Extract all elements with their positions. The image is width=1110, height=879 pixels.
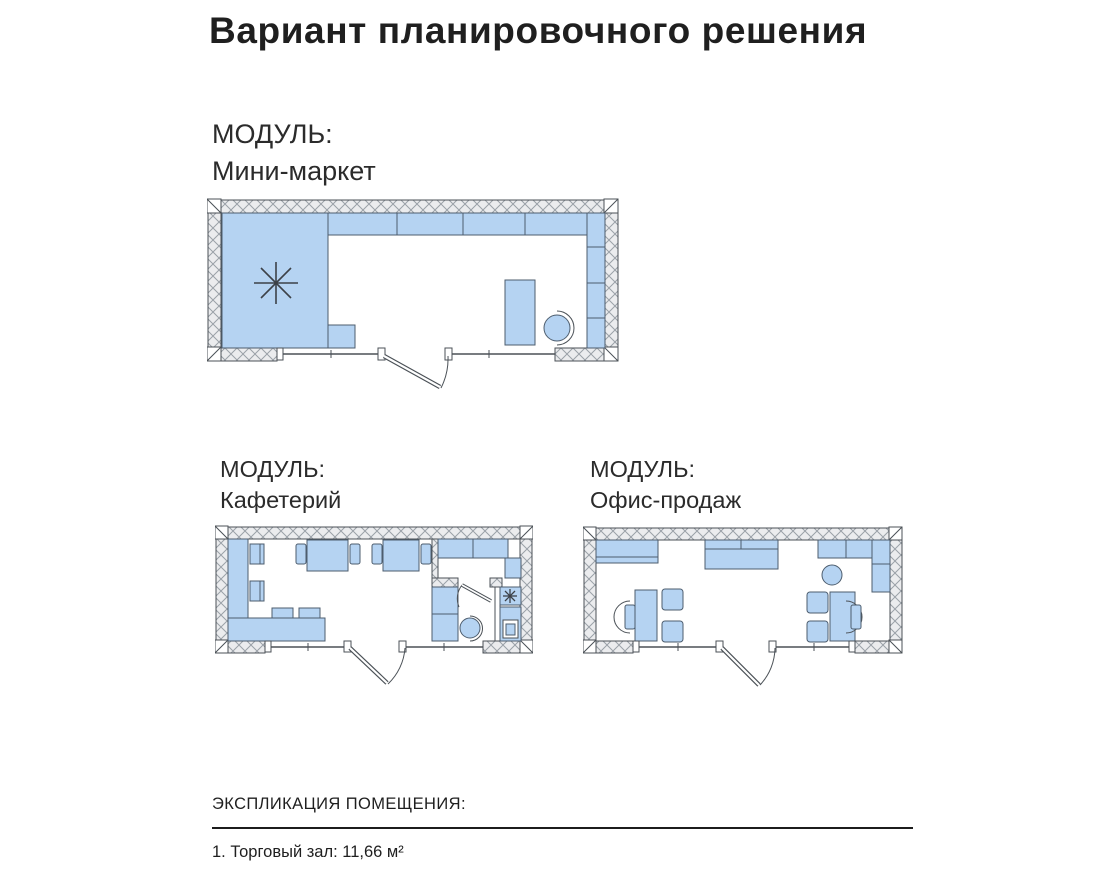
sofa [705,540,778,569]
desk [635,590,657,641]
storefront-glazing [265,641,483,652]
kitchen-stool [460,616,483,641]
kitchen-cabinets [432,587,458,641]
floor-plan-minimarket [207,198,620,396]
visitor-chair [662,589,683,610]
door-swing-arc [760,648,775,685]
cashier-stool [544,311,574,345]
module-name-minimarket: Мини-маркет [212,153,376,190]
visitor-chair [807,592,828,613]
explication-divider [212,827,913,829]
visitor-chair [807,621,828,642]
explication-item: 1. Торговый зал: 11,66 м² [212,843,404,862]
kitchen-counter [438,539,521,578]
module-label-prefix: МОДУЛЬ: [590,454,741,485]
wall-cabinet [596,540,658,563]
module-label-salesoffice: МОДУЛЬ: Офис-продаж [590,454,741,516]
workstation-2 [807,592,862,642]
floor-plan-cafeteria [215,525,533,700]
page-title: Вариант планировочного решения [209,10,867,52]
cashier-counter [505,280,535,345]
wc-room [500,587,521,641]
coffee-table [822,565,842,585]
interior-door [457,585,491,607]
dining-table-1 [296,540,360,571]
explication-heading: ЭКСПЛИКАЦИЯ ПОМЕЩЕНИЯ: [212,795,466,814]
module-label-prefix: МОДУЛЬ: [220,454,341,485]
entrance-door [344,641,406,684]
door-swing-arc [388,648,405,684]
module-label-minimarket: МОДУЛЬ: Мини-маркет [212,116,376,190]
visitor-chair [662,621,683,642]
storefront-glazing [633,641,855,652]
storefront-glazing [277,348,555,360]
module-name-salesoffice: Офис-продаж [590,485,741,516]
floor-plan-salesoffice [583,525,903,700]
workstation-1 [614,589,683,642]
entrance-door [716,641,776,685]
module-label-prefix: МОДУЛЬ: [212,116,376,153]
shelving-top-wall [328,213,587,235]
module-name-cafeteria: Кафетерий [220,485,341,516]
page: Вариант планировочного решения МОДУЛЬ: М… [0,0,1110,879]
shelving-right-wall [587,213,605,348]
entrance-door [378,348,452,388]
dining-table-2 [372,540,431,571]
module-label-cafeteria: МОДУЛЬ: Кафетерий [220,454,341,516]
door-swing-arc [441,356,448,388]
ceiling-light-icon [503,589,517,603]
